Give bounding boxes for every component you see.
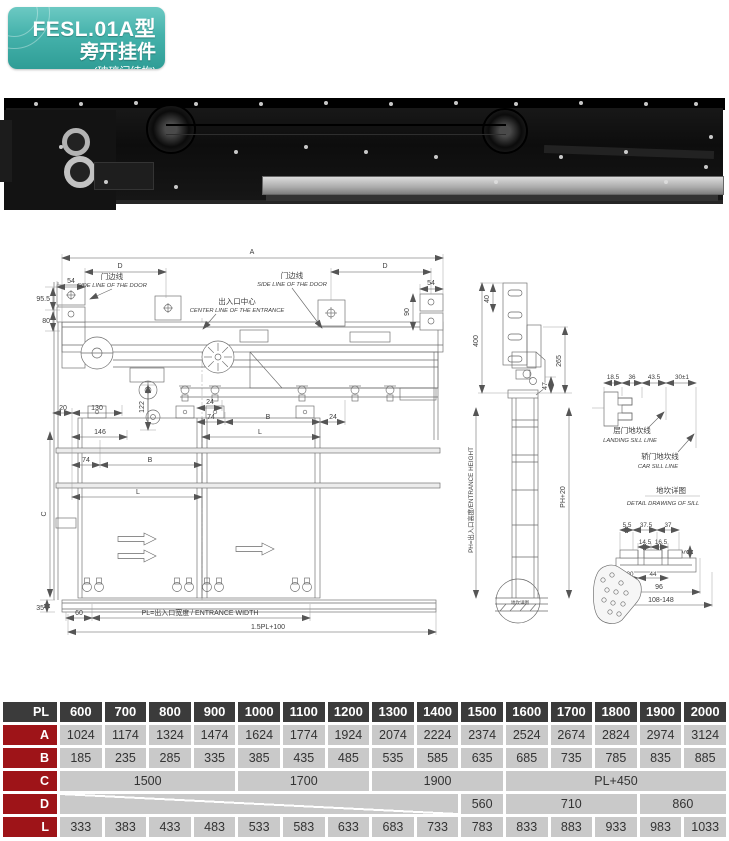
drawing-shape [57,307,85,322]
drawing-shape [202,418,320,598]
drawing-shape [250,352,438,388]
screw-dot [134,101,138,105]
row-label: D [3,794,57,814]
side-line-label-right-en: SIDE LINE OF THE DOOR [257,282,328,288]
photo-plate [94,162,154,190]
value-cell: 683 [372,817,414,837]
drive-belt [166,134,506,135]
dim-37: 37 [664,522,672,529]
drawing-shape [386,386,394,394]
drawing-shape [78,418,202,598]
datasheet-page: FESL.01A型 旁开挂件 (玻璃门结构) [0,0,729,841]
product-name: 旁开挂件 [8,43,156,62]
dim-43-5: 43.5 [648,374,661,381]
drawing-shape [181,386,189,394]
dim-14-5: 14.5 [639,539,652,546]
bearing-roller [62,128,90,156]
value-cell: 483 [194,817,236,837]
value-cell: 335 [194,748,236,768]
row-label: B [3,748,57,768]
value-cell: 585 [417,748,459,768]
col-header: 1300 [372,702,414,722]
value-cell: 185 [60,748,102,768]
dim-108-148: 108-148 [648,597,674,604]
dim-5-right: 5 [682,550,689,554]
dim-54-right: 54 [427,280,435,287]
value-cell: 485 [328,748,370,768]
value-cell: 1500 [60,771,235,791]
front-view: A D D 54 54 95.5 80 90 门边线 SIDE LINE OF … [36,249,443,635]
drawing-shape [62,322,443,352]
dim-18-5: 18.5 [607,374,620,381]
value-cell: 560 [461,794,503,814]
drawing-shape [508,390,538,398]
dim-d-left: D [117,263,122,270]
table-corner-pl: PL [3,702,57,722]
value-cell: 633 [328,817,370,837]
screw-dot [364,150,368,154]
drawing-shape [90,289,112,299]
ph20-label: PH+20 [560,486,567,508]
drawing-shape [400,388,436,400]
car-sill-en: CAR SILL LINE [638,464,678,470]
screw-dot [644,102,648,106]
guide-rail [262,176,724,195]
drawing-shape [618,413,632,420]
screw-dot [324,101,328,105]
drawing-shape [130,368,164,382]
col-header: 800 [149,702,191,722]
dim-80: 80 [42,318,50,325]
col-header: 1100 [283,702,325,722]
drawing-shape [303,410,307,414]
value-cell: 2524 [506,725,548,745]
screw-dot [79,102,83,106]
value-cell: 860 [640,794,726,814]
value-cell: 685 [506,748,548,768]
screw-dot [434,155,438,159]
sill-detail-title-en: DETAIL DRAWING OF SILL [627,501,699,507]
drawing-shape [510,604,516,611]
gusset-bracket [593,565,641,623]
screw-dot [694,102,698,106]
dim-36: 36 [628,374,636,381]
drawing-shape [530,604,536,611]
screw-dot [514,102,518,106]
drawing-shape [530,378,537,385]
screw-dot [389,102,393,106]
screw-dot [704,165,708,169]
bearing-roller [64,156,96,188]
value-cell: 983 [640,817,682,837]
drawing-shape [678,434,694,452]
value-cell: 533 [238,817,280,837]
dim-l-right: L [258,429,262,436]
value-cell: 2674 [551,725,593,745]
value-cell: 635 [461,748,503,768]
product-photo [4,90,725,218]
drawing-shape [298,386,306,394]
screw-dot [104,180,108,184]
value-cell: 933 [595,817,637,837]
photo-left-protrusion [0,120,12,182]
dim-130: 130 [91,405,103,412]
col-header: 2000 [684,702,726,722]
col-header: 1900 [640,702,682,722]
value-cell: 435 [283,748,325,768]
value-cell: 1700 [238,771,369,791]
screw-dot [259,102,263,106]
entrance-height-label: PH=出入口高度/ENTRANCE HEIGHT [466,447,475,553]
dim-c: C [41,511,48,516]
value-cell: 1474 [194,725,236,745]
value-cell: 285 [149,748,191,768]
dim-24-top: 24 [206,399,214,406]
value-cell: 433 [149,817,191,837]
dim-74-right: 74 [207,414,215,421]
dim-20: 20 [59,405,67,412]
car-sill-cn: 轿门地坎线 [641,451,679,461]
door-motion-arrow [118,533,156,545]
dim-90: 90 [404,308,411,316]
row-label: C [3,771,57,791]
idler-pulley [482,108,528,154]
col-header: 1500 [461,702,503,722]
row-label: L [3,817,57,837]
guide-rail-shadow [266,195,718,201]
screw-dot [304,145,308,149]
side-line-label-right-cn: 门边线 [281,270,304,280]
drawing-shape [296,406,314,418]
sill-detail: 18.5 36 43.5 30±1 层门地坎线 LANDING SILL LIN… [592,374,712,624]
screw-dot [59,145,63,149]
dim-74-left: 74 [82,457,90,464]
drawing-shape [176,406,194,418]
drawing-shape [420,313,443,330]
screw-dot [174,185,178,189]
col-header: 1400 [417,702,459,722]
drawing-shape [56,448,440,453]
dim-b-left: B [148,457,153,464]
screw-dot [234,150,238,154]
drawing-shape [503,283,527,365]
col-header: 700 [105,702,147,722]
sill-detail-ref: 地坎详图 [511,599,529,606]
drawing-shape [250,352,282,388]
sill-detail-title-cn: 地坎详图 [656,485,686,495]
value-cell: 1033 [684,817,726,837]
technical-drawing: A D D 54 54 95.5 80 90 门边线 SIDE LINE OF … [0,230,729,695]
photo-left-mechanism [4,110,116,210]
value-cell: 2824 [595,725,637,745]
value-cell: 333 [60,817,102,837]
dim-44: 44 [649,571,657,578]
drawing-shape [56,483,440,488]
drive-belt [166,124,506,126]
value-cell: 1174 [105,725,147,745]
drawing-shape [182,395,188,401]
dim-35: 35 [36,605,44,612]
value-cell: 235 [105,748,147,768]
drawing-shape [352,395,358,401]
product-subtitle: (玻璃门结构) [8,63,156,69]
value-cell: PL+450 [506,771,726,791]
screw-dot [494,180,498,184]
value-cell: 883 [551,817,593,837]
center-line-label-en: CENTER LINE OF THE ENTRANCE [190,308,285,314]
dim-16-5: 16.5 [655,539,668,546]
screw-dot [709,135,713,139]
col-header: 1200 [328,702,370,722]
dim-47: 47 [542,382,549,390]
dim-400: 400 [473,335,480,347]
screw-dot [454,101,458,105]
spec-table: PL60070080090010001100120013001400150016… [0,699,729,840]
value-cell: 2974 [640,725,682,745]
drawing-shape [183,410,187,414]
landing-sill-cn: 层门地坎线 [613,425,651,435]
dim-95-5: 95.5 [36,296,50,303]
value-cell: 2074 [372,725,414,745]
screw-dot [579,101,583,105]
value-cell: 783 [461,817,503,837]
drawing-shape [500,604,506,611]
landing-sill-en: LANDING SILL LINE [603,438,657,444]
dim-30: 30±1 [675,374,689,381]
entrance-width-label: PL=出入口宽度 / ENTRANCE WIDTH [142,608,259,617]
col-header: 900 [194,702,236,722]
value-cell: 583 [283,817,325,837]
dim-122: 122 [139,401,146,413]
value-cell: 1924 [328,725,370,745]
screw-dot [624,150,628,154]
col-header: 1700 [551,702,593,722]
dim-54-left: 54 [67,278,75,285]
drawing-shape [56,518,76,528]
screw-dot [559,155,563,159]
dim-96: 96 [655,584,663,591]
col-header: 1000 [238,702,280,722]
value-cell: 835 [640,748,682,768]
dim-265: 265 [556,355,563,367]
drawing-shape [618,398,632,405]
col-header: 1800 [595,702,637,722]
drive-pulley [146,104,196,154]
col-header: 600 [60,702,102,722]
drawing-shape [604,392,632,426]
side-line-label-left-en: SIDE LINE OF THE DOOR [77,283,148,289]
value-cell: 885 [684,748,726,768]
dim-b-right: B [266,414,271,421]
drawing-shape [520,604,526,611]
dim-24-right: 24 [329,414,337,421]
drawing-shape [420,294,443,311]
value-cell: 1324 [149,725,191,745]
drawing-shape [151,415,156,420]
screw-dot [194,102,198,106]
side-line-label-left-cn: 门边线 [101,271,124,281]
overall-width-label: 1.5PL+100 [251,624,285,631]
value-cell: 1624 [238,725,280,745]
side-view: 400 40 265 47 PH=出入口高度/ENTRANCE HEIGHT P… [466,283,572,623]
dim-a: A [250,249,255,256]
value-cell: 2224 [417,725,459,745]
dim-d-right: D [382,263,387,270]
row-label: A [3,725,57,745]
drawing-shape [351,386,359,394]
value-cell: 2374 [461,725,503,745]
value-cell: 735 [551,748,593,768]
drawing-shape [527,325,541,367]
product-badge: FESL.01A型 旁开挂件 (玻璃门结构) [8,7,165,69]
dim-l-left: L [136,489,140,496]
drawing-shape [620,550,638,558]
drawing-shape [211,386,219,394]
value-cell: 733 [417,817,459,837]
value-cell: 710 [506,794,637,814]
value-cell: 3124 [684,725,726,745]
drawing-shape [668,550,682,558]
center-line-label-cn: 出入口中心 [218,296,256,306]
dim-40: 40 [484,295,491,303]
dim-146: 146 [94,429,106,436]
value-cell: 1774 [283,725,325,745]
door-motion-arrow [236,543,274,555]
drawing-shape [387,395,393,401]
value-cell: 1024 [60,725,102,745]
screw-dot [664,180,668,184]
value-cell: 535 [372,748,414,768]
drawing-shape [644,550,662,558]
dim-60: 60 [75,610,83,617]
dim-5-5: 5.5 [623,522,632,529]
value-cell: 833 [506,817,548,837]
screw-dot [34,102,38,106]
door-motion-arrow [118,550,156,562]
dim-37-5: 37.5 [640,522,653,529]
drawing-shape [299,395,305,401]
empty-cell [60,794,458,814]
col-header: 1600 [506,702,548,722]
value-cell: 785 [595,748,637,768]
value-cell: 383 [105,817,147,837]
value-cell: 385 [238,748,280,768]
value-cell: 1900 [372,771,503,791]
